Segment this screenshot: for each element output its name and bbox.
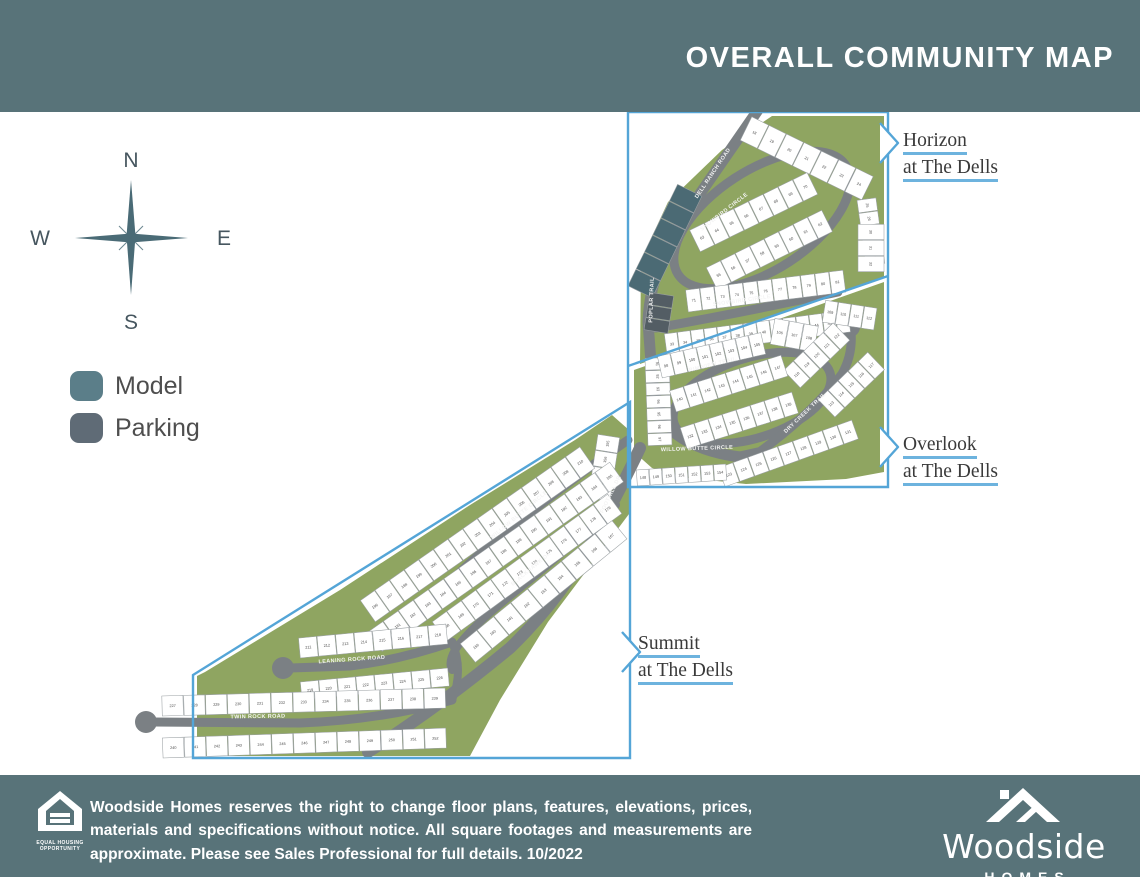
lot-number: 77 xyxy=(778,287,783,292)
lot-number: 221 xyxy=(344,685,351,690)
lot-number: 79 xyxy=(806,284,811,289)
overlook-label-line2: at The Dells xyxy=(903,461,998,486)
legend-model-label: Model xyxy=(115,372,183,401)
road-cul-de-sac xyxy=(272,657,294,679)
compass-rose-icon xyxy=(75,180,188,295)
lot-number: 244 xyxy=(257,743,263,747)
legend-item-model: Model xyxy=(70,371,200,401)
lot-number: 222 xyxy=(362,683,369,688)
lot-number: 40 xyxy=(762,330,767,335)
lot-number: 91 xyxy=(655,362,659,366)
equal-housing-house-icon xyxy=(35,789,85,835)
lot-number: 250 xyxy=(389,738,395,742)
lot-number: 76 xyxy=(763,289,768,294)
model-swatch xyxy=(70,371,103,401)
lot-number: 246 xyxy=(301,741,307,745)
lot-number: 247 xyxy=(323,740,329,744)
equal-housing-logo: EQUAL HOUSING OPPORTUNITY xyxy=(34,789,86,853)
lot-number: 97 xyxy=(657,437,661,441)
compass-n: N xyxy=(123,149,138,172)
disclaimer-line-3: approximate. Please see Sales Profession… xyxy=(90,843,752,866)
lot-number: 230 xyxy=(235,702,241,706)
lot-number: 94 xyxy=(656,399,660,403)
lot-number: 151 xyxy=(678,473,685,477)
lot-number: 78 xyxy=(792,285,797,290)
compass-s: S xyxy=(124,311,138,334)
lot-number: 235 xyxy=(344,699,350,703)
label-summit-at-the-dells[interactable]: Summit at The Dells xyxy=(638,633,733,687)
lot-number: 80 xyxy=(821,282,826,287)
lot-number: 73 xyxy=(720,295,725,300)
lot-number: 30 xyxy=(869,230,873,234)
lot-number: 37 xyxy=(722,335,727,340)
lot-number: 211 xyxy=(305,645,311,650)
lot-number: 71 xyxy=(691,298,696,303)
lot-number: 92 xyxy=(655,374,659,378)
lot-number: 237 xyxy=(388,698,394,702)
disclaimer-line-1: Woodside Homes reserves the right to cha… xyxy=(90,796,752,819)
lot-number: 31 xyxy=(869,246,873,250)
legend: Model Parking xyxy=(70,371,200,455)
lot-number: 32 xyxy=(869,262,873,266)
lot-number: 226 xyxy=(436,676,443,681)
lot-number: 111 xyxy=(853,314,859,319)
lot-number: 93 xyxy=(656,387,660,391)
lot-number: 95 xyxy=(657,412,661,416)
lot-number: 240 xyxy=(170,746,176,750)
lot-number: 214 xyxy=(360,640,367,645)
compass: N S W E xyxy=(28,132,238,342)
compass-e: E xyxy=(217,227,231,250)
legend-item-parking: Parking xyxy=(70,413,200,443)
lot-number: 150 xyxy=(665,474,672,478)
lot-number: 238 xyxy=(410,697,416,701)
road-name: TWIN ROCK ROAD xyxy=(230,714,285,721)
overlook-label-line1: Overlook xyxy=(903,434,977,459)
compass-w: W xyxy=(30,227,50,250)
lot-number: 152 xyxy=(691,472,698,476)
disclaimer: Woodside Homes reserves the right to cha… xyxy=(90,796,752,866)
lot-number: 218 xyxy=(434,633,441,638)
lot-number: 81 xyxy=(835,280,840,285)
lot-number: 227 xyxy=(169,704,175,708)
lot-number: 75 xyxy=(749,291,754,296)
lot-number: 96 xyxy=(657,425,661,429)
header: OVERALL COMMUNITY MAP xyxy=(0,0,1140,112)
lot-number: 225 xyxy=(418,678,425,683)
lot-number: 249 xyxy=(367,739,373,743)
lot-number: 231 xyxy=(257,701,263,705)
lot-number: 245 xyxy=(279,742,285,746)
horizon-label-line1: Horizon xyxy=(903,130,967,155)
lot-number: 215 xyxy=(379,638,386,643)
label-horizon-at-the-dells[interactable]: Horizon at The Dells xyxy=(903,130,998,184)
lot-number: 243 xyxy=(236,743,242,747)
lot-number: 216 xyxy=(397,636,404,641)
lot-number: 220 xyxy=(325,686,332,691)
lot-number: 252 xyxy=(432,737,438,741)
lot-number: 233 xyxy=(300,700,306,704)
lot-number: 213 xyxy=(342,642,349,647)
horizon-label-line2: at The Dells xyxy=(903,157,998,182)
lot-number: 251 xyxy=(410,737,416,741)
lot-number: 153 xyxy=(704,471,711,475)
disclaimer-line-2: materials and specifications without not… xyxy=(90,819,752,842)
page: 1819202122232425262728293031326364656667… xyxy=(0,0,1140,877)
lot-number: 234 xyxy=(322,700,328,704)
lot-number: 154 xyxy=(717,471,724,475)
label-overlook-at-the-dells[interactable]: Overlook at The Dells xyxy=(903,434,998,488)
legend-parking-label: Parking xyxy=(115,414,200,443)
lot-number: 148 xyxy=(640,476,647,480)
lot-number: 242 xyxy=(214,744,220,748)
lot-number: 239 xyxy=(432,697,438,701)
lot-number: 33 xyxy=(670,342,675,347)
brand-wordmark: Woodside xyxy=(938,827,1110,866)
lot-number: 229 xyxy=(213,703,219,707)
lot-number: 248 xyxy=(345,740,351,744)
lot-number: 224 xyxy=(399,679,406,684)
woodside-roof-icon xyxy=(938,776,1110,824)
brand-subtitle: HOMES xyxy=(938,869,1110,877)
lot-number: 25 xyxy=(865,203,870,208)
woodside-homes-logo: Woodside HOMES xyxy=(938,776,1110,877)
lot-number: 223 xyxy=(381,681,388,686)
summit-label-line2: at The Dells xyxy=(638,660,733,685)
lot-number: 212 xyxy=(323,643,330,648)
lot-number: 149 xyxy=(653,475,660,479)
page-title: OVERALL COMMUNITY MAP xyxy=(686,42,1114,75)
eho-text-line2: OPPORTUNITY xyxy=(34,846,86,852)
lot-number: 217 xyxy=(416,635,423,640)
lot-number: 74 xyxy=(735,293,740,298)
lot-number: 236 xyxy=(366,698,372,702)
parking-swatch xyxy=(70,413,103,443)
lot-number: 72 xyxy=(706,296,711,301)
road-cul-de-sac xyxy=(135,711,157,733)
lot-number: 232 xyxy=(279,701,285,705)
summit-label-line1: Summit xyxy=(638,633,700,658)
lot-number: 26 xyxy=(867,216,872,221)
lot-number: 34 xyxy=(683,340,688,345)
